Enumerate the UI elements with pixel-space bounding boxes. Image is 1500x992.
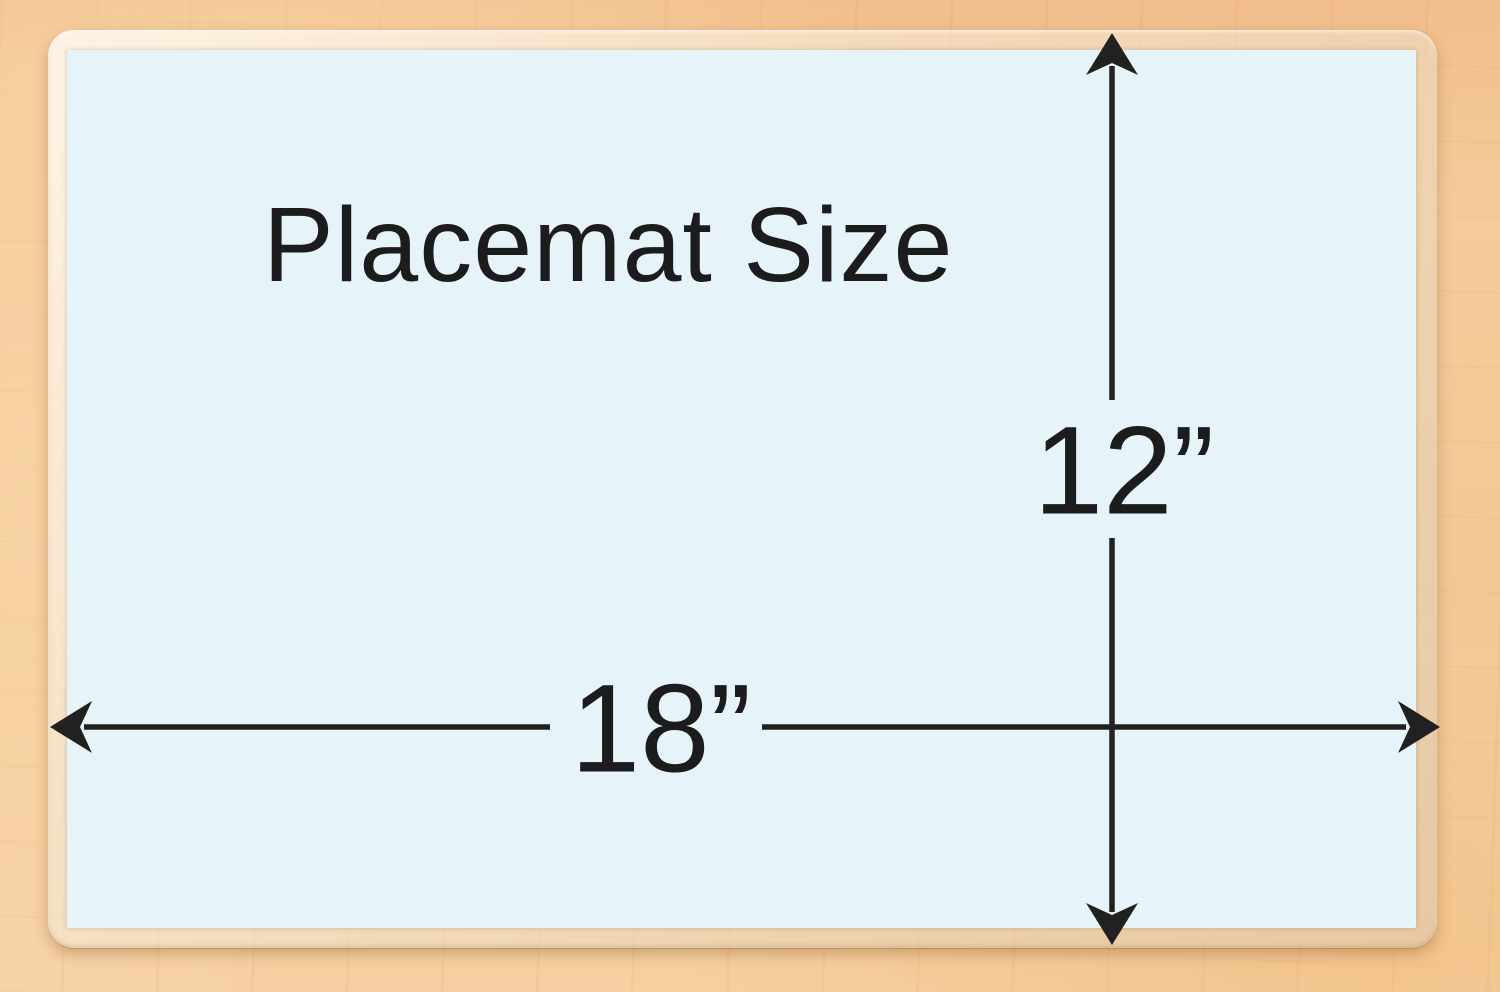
page-title: Placemat Size: [263, 192, 954, 298]
placemat-laminate-edge: [48, 30, 1437, 948]
height-dimension-label: 12”: [1034, 409, 1215, 534]
width-dimension-label: 18”: [571, 667, 752, 792]
wood-table-background: Placemat Size 18” 12”: [0, 0, 1500, 992]
